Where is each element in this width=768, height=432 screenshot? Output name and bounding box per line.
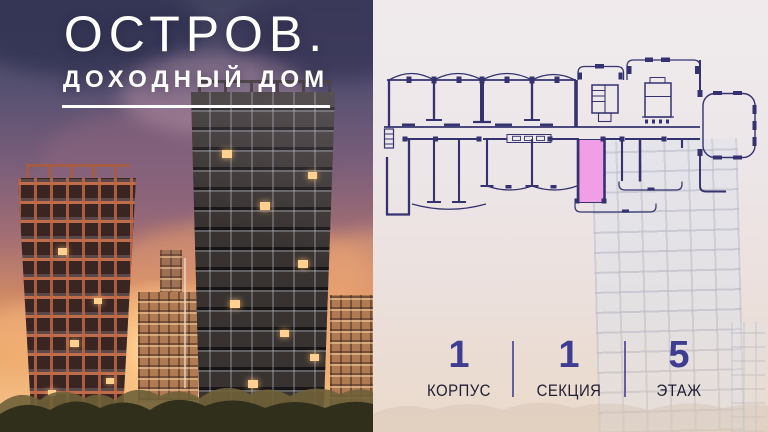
stat-korpus-label: КОРПУС (412, 381, 505, 401)
tree-silhouettes (0, 374, 373, 432)
lit-window (308, 172, 317, 179)
brand-underline (62, 105, 330, 108)
brand-block: ОСТРОВ. ДОХОДНЫЙ ДОМ (40, 6, 352, 108)
lit-window (230, 300, 240, 308)
brand-title: ОСТРОВ. (40, 6, 352, 62)
lit-window (260, 202, 270, 210)
stat-etazh-label: ЭТАЖ (632, 381, 725, 401)
flagpole (184, 258, 186, 388)
stat-etazh: 5 ЭТАЖ (626, 336, 732, 401)
stats-divider (624, 341, 626, 397)
lit-window (298, 260, 308, 268)
lit-window (58, 248, 67, 255)
stat-korpus: 1 КОРПУС (406, 336, 512, 401)
stat-sektsiya: 1 СЕКЦИЯ (514, 336, 624, 401)
lit-window (280, 330, 289, 337)
stats-divider (512, 341, 514, 397)
lit-window (310, 354, 319, 361)
tower-left-roof-frame (26, 164, 130, 180)
stat-sektsiya-label: СЕКЦИЯ (521, 381, 618, 401)
lit-window (70, 340, 79, 347)
location-stats: 1 КОРПУС 1 СЕКЦИЯ 5 ЭТАЖ (406, 336, 736, 401)
stat-korpus-value: 1 (406, 336, 512, 374)
lit-window (94, 298, 102, 304)
brand-subtitle: ДОХОДНЫЙ ДОМ (40, 66, 352, 94)
stat-sektsiya-value: 1 (514, 336, 624, 374)
photo-panel: ОСТРОВ. ДОХОДНЫЙ ДОМ (0, 0, 373, 432)
lit-window (222, 150, 232, 158)
plan-panel: 1 КОРПУС 1 СЕКЦИЯ 5 ЭТАЖ (373, 0, 768, 432)
highlighted-unit[interactable] (579, 140, 604, 203)
stat-etazh-value: 5 (626, 336, 732, 374)
flyer-canvas: ОСТРОВ. ДОХОДНЫЙ ДОМ (0, 0, 768, 432)
